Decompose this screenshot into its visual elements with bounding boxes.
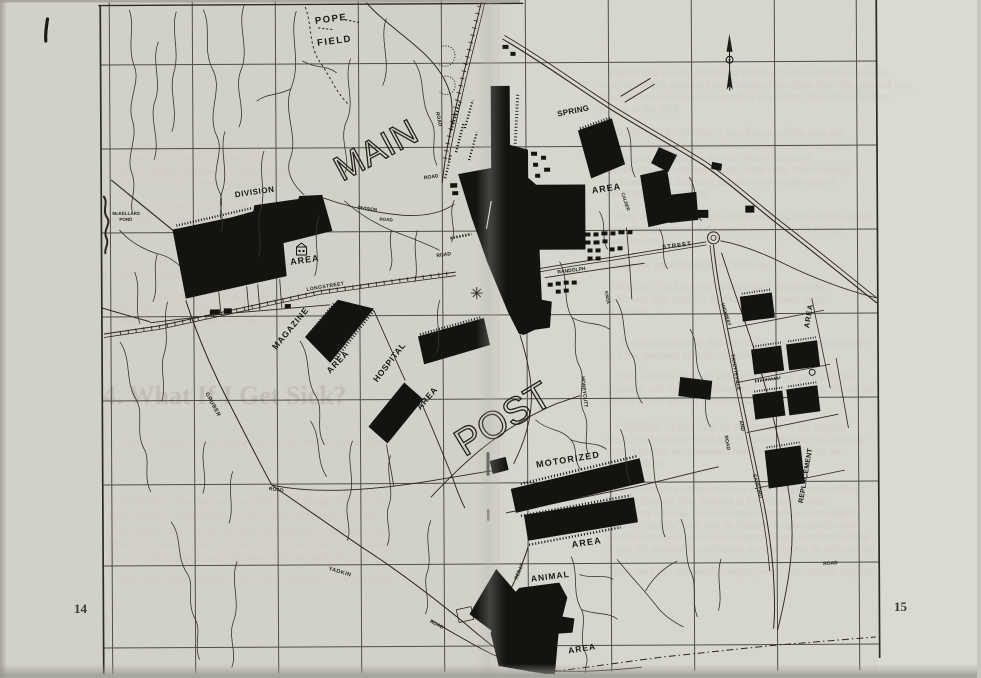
svg-text:Regular drill at camp Dont lea: Regular drill at camp Dont leave Hall ev…: [608, 68, 888, 79]
svg-text:If a man wants to see that thi: If a man wants to see that this original…: [620, 338, 869, 349]
svg-text:ROAD: ROAD: [823, 560, 839, 567]
svg-text:Repairs Barracks First Sergean: Repairs Barracks First Sergeant at Son. …: [607, 496, 825, 507]
svg-text:ROAD: ROAD: [379, 217, 393, 223]
svg-text:POND: POND: [119, 217, 133, 222]
svg-text:Dispensary will take care of h: Dispensary will take care of his appoint…: [607, 508, 860, 519]
svg-text:in one of them a large infirma: in one of them a large infirmary to be a…: [108, 511, 375, 522]
svg-text:In REVEILLE. The Post is your: In REVEILLE. The Post is your first stop…: [614, 128, 843, 139]
svg-text:No. 3 is at the northeast end: No. 3 is at the northeast end of the map…: [108, 553, 380, 564]
svg-text:his time with the nearby Post: his time with the nearby Post and Field …: [116, 155, 276, 165]
svg-text:if your kit, stamped the unifo: if your kit, stamped the uniform at an e…: [607, 544, 875, 555]
svg-text:at his own high school to the: at his own high school to the Park, will…: [607, 294, 826, 305]
svg-text:of the ground lines. It is the: of the ground lines. It is the big brick…: [108, 525, 387, 536]
svg-text:those the points you will star: those the points you will start abode te…: [122, 437, 386, 448]
svg-text:around the quarters. Station H: around the quarters. Station Hospital No…: [108, 539, 390, 550]
svg-text:are in your own quarters the a: are in your own quarters the area. Also …: [607, 153, 813, 164]
svg-text:also (Personally when to fill: also (Personally when to fill out papers…: [607, 532, 870, 543]
svg-text:They have also assured the com: They have also assured the company when …: [612, 567, 876, 578]
svg-text:A DENTAL CLINIC is at the sold: A DENTAL CLINIC is at the soldiers and d…: [614, 422, 847, 433]
svg-text:at pay call: at pay call: [607, 306, 648, 317]
svg-text:DORMITORY. There are many hosp: DORMITORY. There are many hospitals at F…: [108, 497, 385, 508]
svg-text:contributions: contributions: [607, 236, 660, 247]
svg-text:there to transport the men als: there to transport the men also travel. …: [116, 167, 295, 177]
svg-text:described (always twice and Sa: described (always twice and Saturday) so…: [600, 92, 891, 103]
svg-text:and Headquarters Battery as we: and Headquarters Battery as well as the …: [607, 165, 852, 176]
svg-text:Remember great Headquarters th: Remember great Headquarters the barge: [607, 260, 769, 271]
svg-text:another the here there made th: another the here there made the other ca…: [116, 316, 287, 327]
svg-text:and other details. There may b: and other details. There may be changes.…: [607, 520, 857, 531]
svg-text:15: 15: [894, 599, 908, 614]
svg-text:14: 14: [74, 601, 88, 616]
svg-text:Dental Code near the same half: Dental Code near the same half Water Bat…: [607, 434, 864, 445]
svg-text:McKELLARS: McKELLARS: [112, 211, 140, 216]
